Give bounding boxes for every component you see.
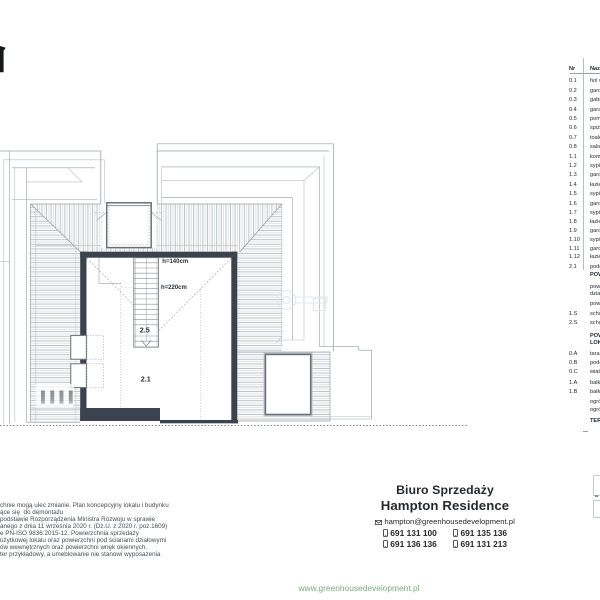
svg-text:2.5: 2.5 — [140, 325, 150, 334]
svg-text:h=140cm: h=140cm — [162, 259, 188, 265]
svg-text:h=220cm: h=220cm — [161, 285, 187, 291]
svg-text:2.1: 2.1 — [141, 375, 151, 384]
